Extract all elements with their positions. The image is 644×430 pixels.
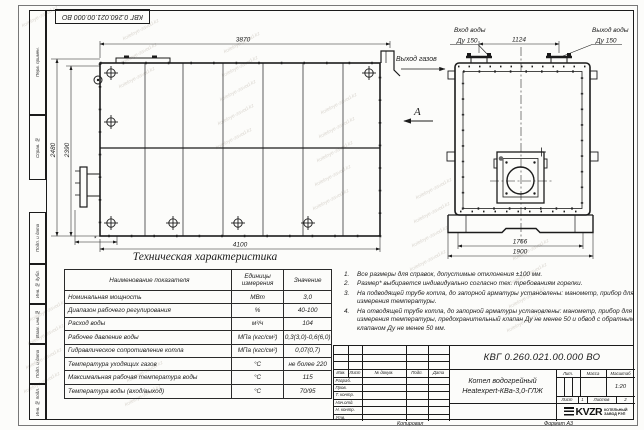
spec-table-title: Техническая характеристика: [75, 251, 335, 263]
rev-header-data: Дата: [428, 369, 449, 377]
rev-header-dokum: № докум.: [362, 369, 406, 377]
spec-cell-units: %: [232, 304, 285, 316]
tb-line: [564, 377, 565, 396]
sign-row-prov: Пров.: [334, 384, 362, 391]
note-number: 2.: [344, 280, 357, 288]
spec-table-row: Расход водым³/ч104: [65, 318, 331, 331]
spec-cell-value: 0,07(0,7): [284, 345, 331, 357]
dim-1900: 1900: [513, 249, 528, 256]
note-text: На отводящей трубе котла, до запорной ар…: [357, 308, 636, 333]
spec-cell-name: Расход воды: [65, 318, 232, 330]
note-item: 3.На подводящей трубе котла, до запорной…: [344, 290, 636, 307]
spec-table-row: Рабочее давление водыМПа (кгс/см²)0,3(3,…: [65, 331, 331, 344]
tb-line: [334, 361, 449, 362]
water-flange: [75, 167, 100, 207]
company-logo: KVZR КОТЕЛЬНЫЙ ЗАВОД РЭП: [556, 403, 635, 421]
spec-cell-name: Температура уходящих газов: [65, 358, 232, 370]
frame-column-podp-data-2: Подп. и дата: [29, 344, 46, 384]
kvzr-logo-subtitle: КОТЕЛЬНЫЙ ЗАВОД РЭП: [604, 408, 627, 417]
frame-column-vzam-inv: Взам. инв. №: [29, 304, 46, 344]
note-number: 4.: [344, 308, 357, 333]
water-out-label-1: Выход воды: [592, 26, 629, 34]
spec-cell-units: МВт: [232, 291, 285, 303]
spec-cell-value: 0,3(3,0)-0,6(6,0): [284, 331, 331, 343]
dim-2390: 2390: [64, 142, 71, 158]
spec-cell-name: Диапазон рабочего регулирования: [65, 304, 232, 316]
water-inlet-nozzle: [466, 53, 492, 63]
rev-header-list: Лист: [348, 369, 362, 377]
format-label: Формат А3: [544, 421, 573, 427]
dim-2480: 2480: [50, 142, 57, 158]
spec-cell-value: 70/95: [284, 385, 331, 398]
water-outlet-nozzle: [546, 53, 572, 63]
boiler-views: 3870 2480 2390 4100 * Выход газов А: [0, 0, 644, 266]
sheet-value: 1: [578, 396, 587, 403]
title-block-doc-number: КВГ 0.260.021.00.000 ВО: [449, 346, 635, 369]
spec-cell-value: 40-100: [284, 304, 331, 316]
dim-4100: 4100: [233, 242, 248, 249]
spec-table-row: Температура уходящих газов°Сне более 220: [65, 358, 331, 371]
note-text: Все размеры для справок, допустимые откл…: [357, 271, 542, 279]
sign-row-razrab: Разраб.: [334, 377, 362, 384]
drawing-sheet: kotelnye-zavod.kzkotelnye-zavod.kzkoteln…: [0, 0, 644, 430]
kvzr-logo-text: KVZR: [576, 406, 603, 418]
view-a-arrow: А: [404, 106, 433, 121]
tb-line: [334, 354, 449, 355]
frame-column-inv-podl: Инв. № подл.: [29, 384, 46, 420]
sign-row-utv: Утв.: [334, 414, 362, 421]
spec-cell-name: Максимальная рабочая температура воды: [65, 371, 232, 383]
sheets-label: Листов: [587, 396, 616, 403]
spec-table-header: Наименование показателя Единицы измерени…: [65, 270, 331, 291]
spec-cell-value: 3,0: [284, 291, 331, 303]
spec-cell-units: МПа (кгс/см²): [232, 331, 285, 343]
product-name: Котел водогрейный Heatexpert-КВа-3,0-ГЛЖ: [449, 369, 556, 403]
copied-label: Копировал: [397, 421, 423, 427]
spec-table-row: Гидравлическое сопротивление котлаМПа (к…: [65, 345, 331, 358]
rev-header-izm: Изм.: [334, 369, 348, 377]
spec-cell-units: МПа (кгс/см²): [232, 345, 285, 357]
spec-cell-units: °С: [232, 358, 285, 370]
spec-table: Наименование показателя Единицы измерени…: [64, 269, 332, 399]
water-in-label-1: Вход воды: [454, 26, 486, 34]
rev-header-podp: Подп.: [406, 369, 428, 377]
note-item: 4.На отводящей трубе котла, до запорной …: [344, 308, 636, 333]
spec-cell-value: 104: [284, 318, 331, 330]
sign-row-tkontr: Т. контр.: [334, 391, 362, 398]
sign-row-nkontr: Н. контр.: [334, 406, 362, 413]
note-text: Размер* выбирается индивидуально согласн…: [357, 280, 583, 288]
spec-cell-units: м³/ч: [232, 318, 285, 330]
title-block: Изм. Лист № докум. Подп. Дата Разраб. Пр…: [333, 345, 634, 420]
spec-cell-value: не более 220: [284, 358, 331, 370]
scale-value: 1:20: [606, 377, 635, 396]
sign-row-nachotd: Нач.отд.: [334, 399, 362, 406]
tb-line: [572, 377, 573, 396]
gas-out-callout: Выход газов: [396, 55, 445, 69]
spec-table-row: Максимальная рабочая температура воды°С1…: [65, 371, 331, 384]
note-item: 1.Все размеры для справок, допустимые от…: [344, 271, 636, 279]
spec-table-row: Диапазон рабочего регулирования%40-100: [65, 304, 331, 317]
spec-table-row: Температура воды (вход/выход)°С70/95: [65, 385, 331, 398]
dim-1124: 1124: [512, 37, 526, 44]
spec-cell-units: °С: [232, 371, 285, 383]
dim-asterisk: *: [94, 236, 97, 243]
note-number: 3.: [344, 290, 357, 307]
spec-cell-name: Номинальная мощность: [65, 291, 232, 303]
side-view: 3870 2480 2390 4100 *: [50, 37, 400, 253]
base-frame: [448, 212, 593, 233]
notes-list: 1.Все размеры для справок, допустимые от…: [344, 271, 636, 334]
front-view: Вход воды Ду 150 Выход воды Ду 150 1124 …: [447, 26, 629, 259]
spec-col-value: Значение: [284, 270, 331, 290]
gas-out-label: Выход газов: [396, 55, 437, 63]
sheets-value: 2: [616, 396, 635, 403]
spec-cell-value: 115: [284, 371, 331, 383]
nozzle-leaders: [450, 45, 622, 57]
note-item: 2.Размер* выбирается индивидуально согла…: [344, 280, 636, 288]
lit-label: Лит.: [556, 369, 580, 377]
kvzr-logo-icon: [564, 407, 574, 417]
dim-3870: 3870: [236, 37, 251, 44]
frame-column-inv-dubl: Инв. № дубл.: [29, 264, 46, 304]
spec-cell-name: Гидравлическое сопротивление котла: [65, 345, 232, 357]
product-name-line1: Котел водогрейный: [468, 376, 536, 386]
spec-table-row: Номинальная мощностьМВт3,0: [65, 291, 331, 304]
scale-label: Масштаб: [606, 369, 635, 377]
sheet-label: Лист: [556, 396, 578, 403]
side-view-dimensions: [51, 41, 390, 252]
note-number: 1.: [344, 271, 357, 279]
dim-1766: 1766: [513, 239, 528, 246]
spec-cell-name: Рабочее давление воды: [65, 331, 232, 343]
spec-table-body: Номинальная мощностьМВт3,0Диапазон рабоч…: [65, 291, 331, 398]
spec-col-units: Единицы измерения: [232, 270, 285, 290]
spec-cell-name: Температура воды (вход/выход): [65, 385, 232, 398]
product-name-line2: Heatexpert-КВа-3,0-ГЛЖ: [462, 386, 543, 396]
front-view-dimensions: [448, 41, 593, 259]
mass-label: Масса: [580, 369, 606, 377]
view-a-label: А: [413, 106, 421, 118]
gas-outlet-duct: [381, 51, 400, 76]
note-text: На подводящей трубе котла, до запорной а…: [357, 290, 636, 307]
spec-cell-units: °С: [232, 385, 285, 398]
water-in-label-2: Ду 150: [456, 38, 478, 45]
spec-col-name: Наименование показателя: [65, 270, 232, 290]
water-out-label-2: Ду 150: [595, 38, 617, 45]
